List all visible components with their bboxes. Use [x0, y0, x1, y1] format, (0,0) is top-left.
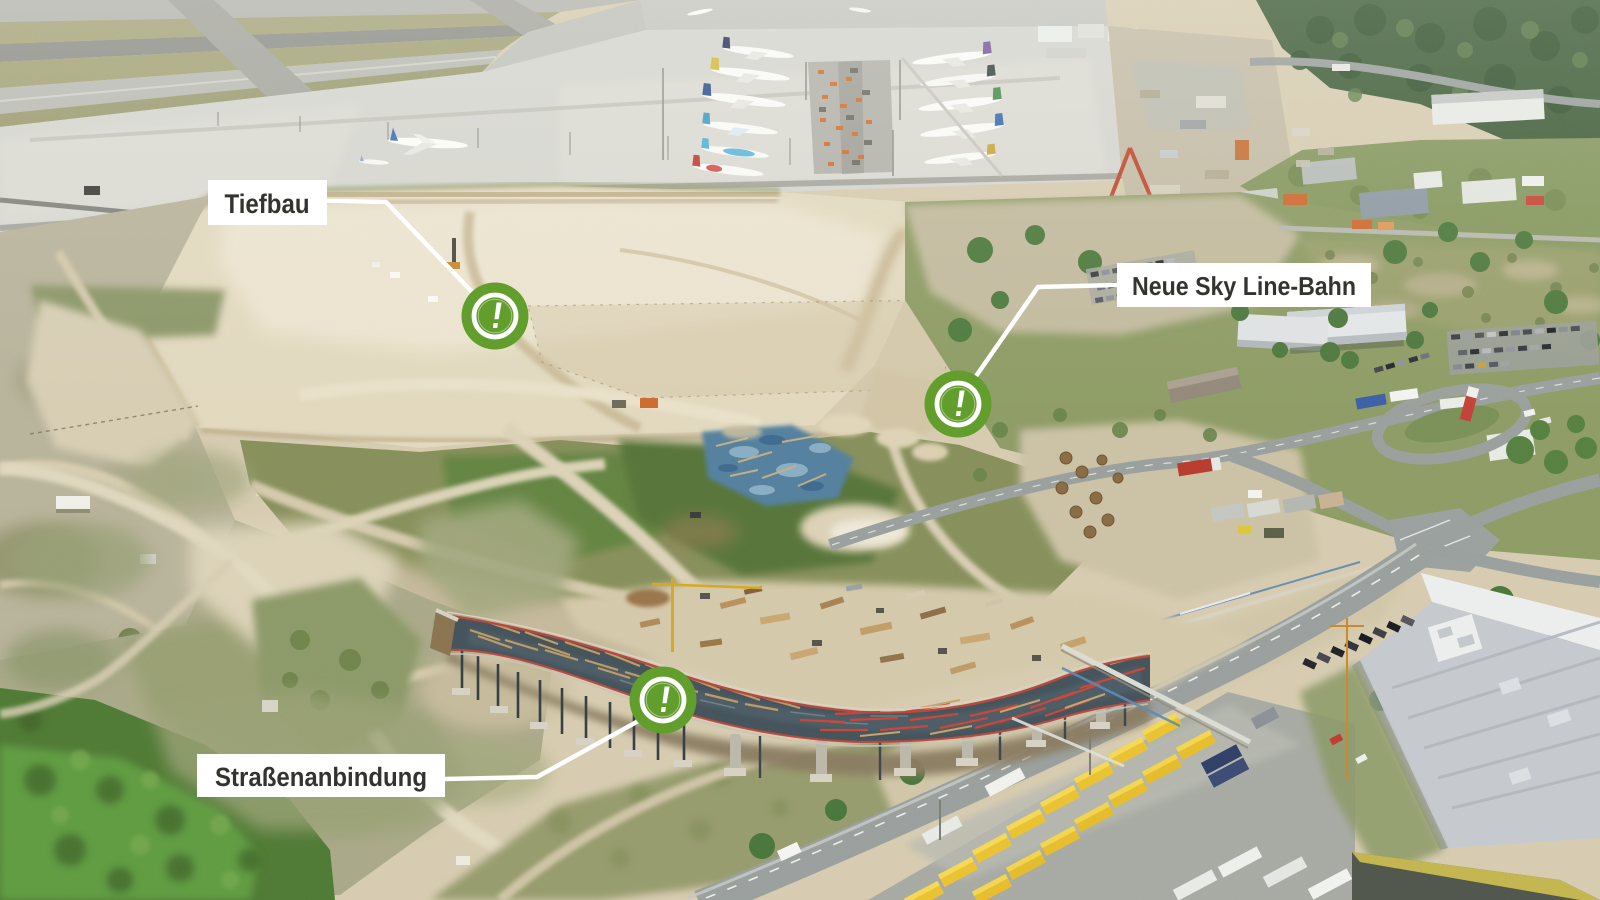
svg-text:Neue Sky Line-Bahn: Neue Sky Line-Bahn [1132, 271, 1356, 301]
svg-text:Tiefbau: Tiefbau [224, 189, 309, 219]
svg-text:Straßenanbindung: Straßenanbindung [215, 762, 427, 792]
